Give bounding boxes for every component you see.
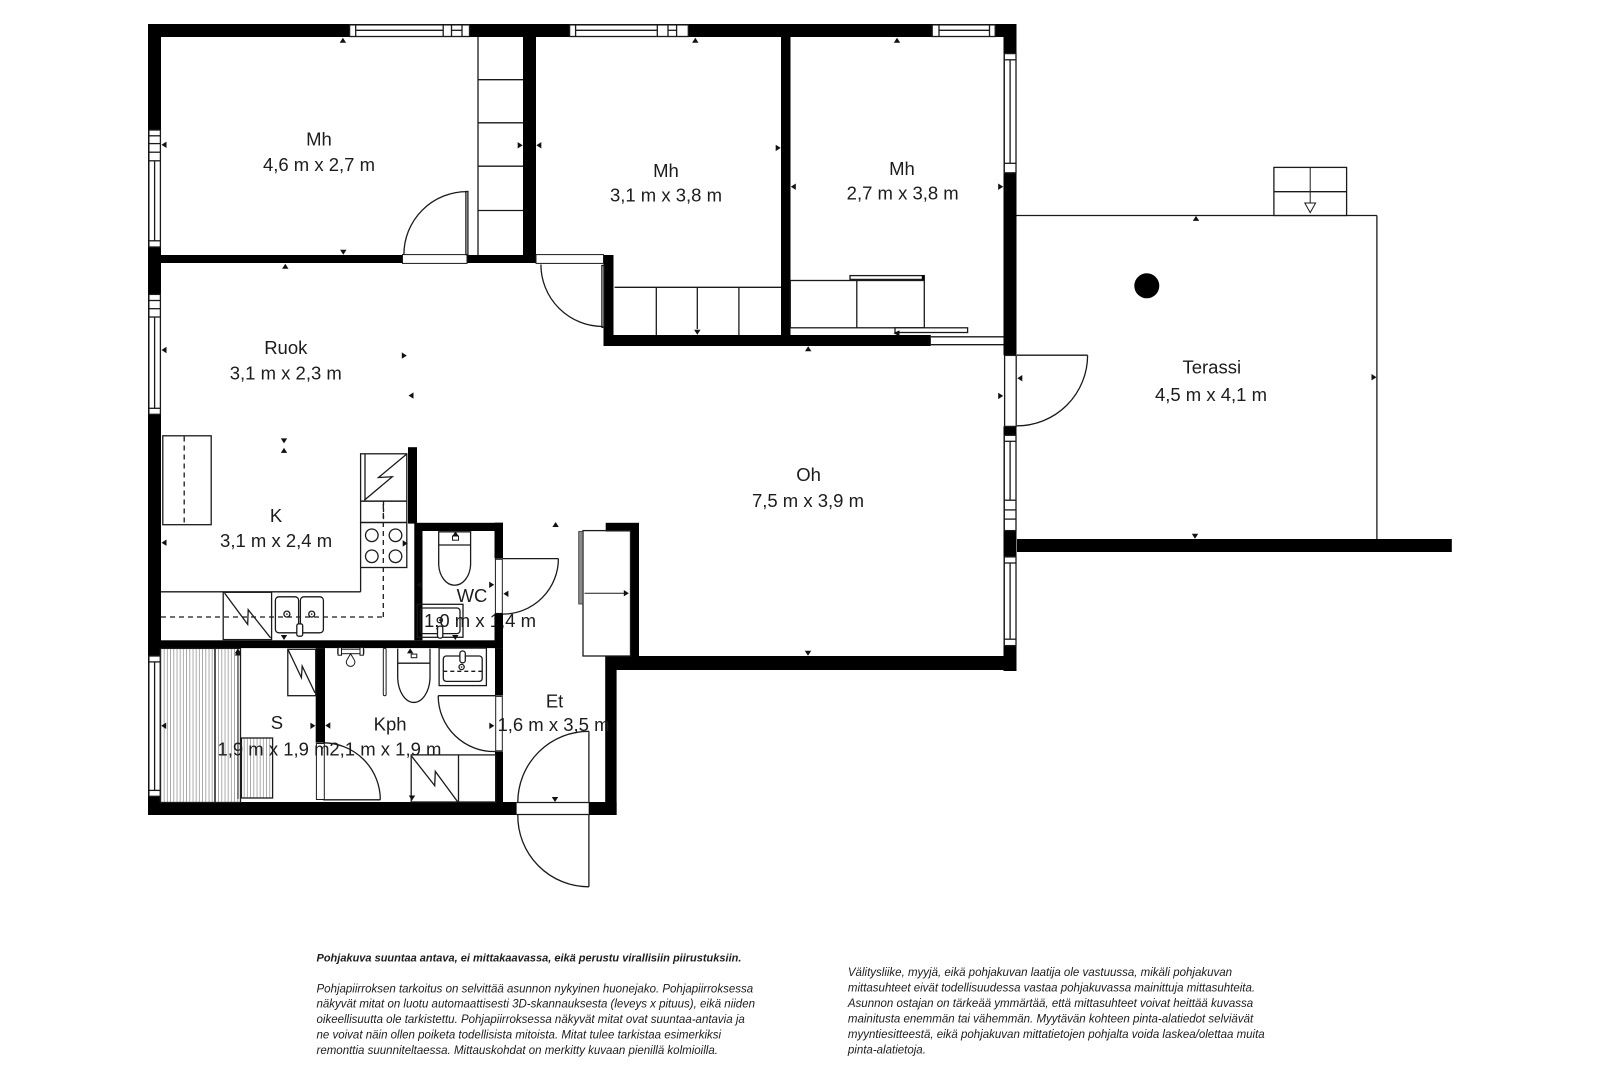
svg-text:ne voivat näin ollen poiketa t: ne voivat näin ollen poiketa todellisist… xyxy=(317,1030,722,1042)
svg-text:näkyvät mitat on luotu automaa: näkyvät mitat on luotu automaattisesti 3… xyxy=(317,999,756,1011)
svg-text:Pohjakuva suuntaa antava, ei m: Pohjakuva suuntaa antava, ei mittakaavas… xyxy=(317,952,742,964)
svg-text:3,1 m x 2,4 m: 3,1 m x 2,4 m xyxy=(220,530,332,551)
svg-text:Et: Et xyxy=(546,690,563,711)
svg-text:Kph: Kph xyxy=(374,714,407,735)
svg-text:1,0 m x 1,4 m: 1,0 m x 1,4 m xyxy=(424,610,536,631)
svg-text:oikeellisuutta ole tarkistettu: oikeellisuutta ole tarkistettu. Pohjapii… xyxy=(317,1014,745,1026)
svg-text:K: K xyxy=(270,505,283,526)
svg-text:3,1 m x 2,3 m: 3,1 m x 2,3 m xyxy=(230,362,342,383)
svg-text:mittasuhteet eivät todellisuud: mittasuhteet eivät todellisuudessa vasta… xyxy=(848,983,1255,995)
svg-text:2,7 m x 3,8 m: 2,7 m x 3,8 m xyxy=(847,183,959,204)
svg-text:Ruok: Ruok xyxy=(264,337,308,358)
svg-text:Terassi: Terassi xyxy=(1182,357,1241,378)
svg-text:S: S xyxy=(271,712,283,733)
svg-text:Pohjapiirroksen tarkoitus on s: Pohjapiirroksen tarkoitus on selvittää a… xyxy=(317,983,754,995)
svg-text:3,1 m x 3,8 m: 3,1 m x 3,8 m xyxy=(610,184,722,205)
svg-text:myyntiesitteestä, eikä pohjaku: myyntiesitteestä, eikä pohjakuvan mittat… xyxy=(848,1029,1265,1041)
svg-text:Asunnon ostajan on tärkeää ymm: Asunnon ostajan on tärkeää ymmärtää, ett… xyxy=(847,998,1253,1010)
svg-text:1,9 m x 1,9 m: 1,9 m x 1,9 m xyxy=(217,739,329,760)
svg-text:Mh: Mh xyxy=(653,160,679,181)
svg-text:7,5 m x 3,9 m: 7,5 m x 3,9 m xyxy=(752,490,864,511)
svg-text:Mh: Mh xyxy=(889,158,915,179)
svg-text:4,5 m x 4,1 m: 4,5 m x 4,1 m xyxy=(1155,384,1267,405)
svg-text:Mh: Mh xyxy=(306,129,332,150)
svg-text:4,6 m x 2,7 m: 4,6 m x 2,7 m xyxy=(263,154,375,175)
svg-text:WC: WC xyxy=(457,585,488,606)
svg-text:Välitysliike, myyjä, eikä pohj: Välitysliike, myyjä, eikä pohjakuvan laa… xyxy=(848,967,1232,979)
svg-text:pinta-alatietoja.: pinta-alatietoja. xyxy=(847,1044,926,1056)
svg-text:1,6 m x 3,5 m: 1,6 m x 3,5 m xyxy=(497,714,609,735)
svg-text:Oh: Oh xyxy=(796,464,821,485)
svg-text:mainitusta enemmän tai vähemmä: mainitusta enemmän tai vähemmän. Myytävä… xyxy=(848,1014,1254,1026)
svg-text:remonttia suunniteltaessa. Mit: remonttia suunniteltaessa. Mittauskohdat… xyxy=(317,1045,718,1057)
svg-text:2,1 m x 1,9 m: 2,1 m x 1,9 m xyxy=(329,738,441,759)
